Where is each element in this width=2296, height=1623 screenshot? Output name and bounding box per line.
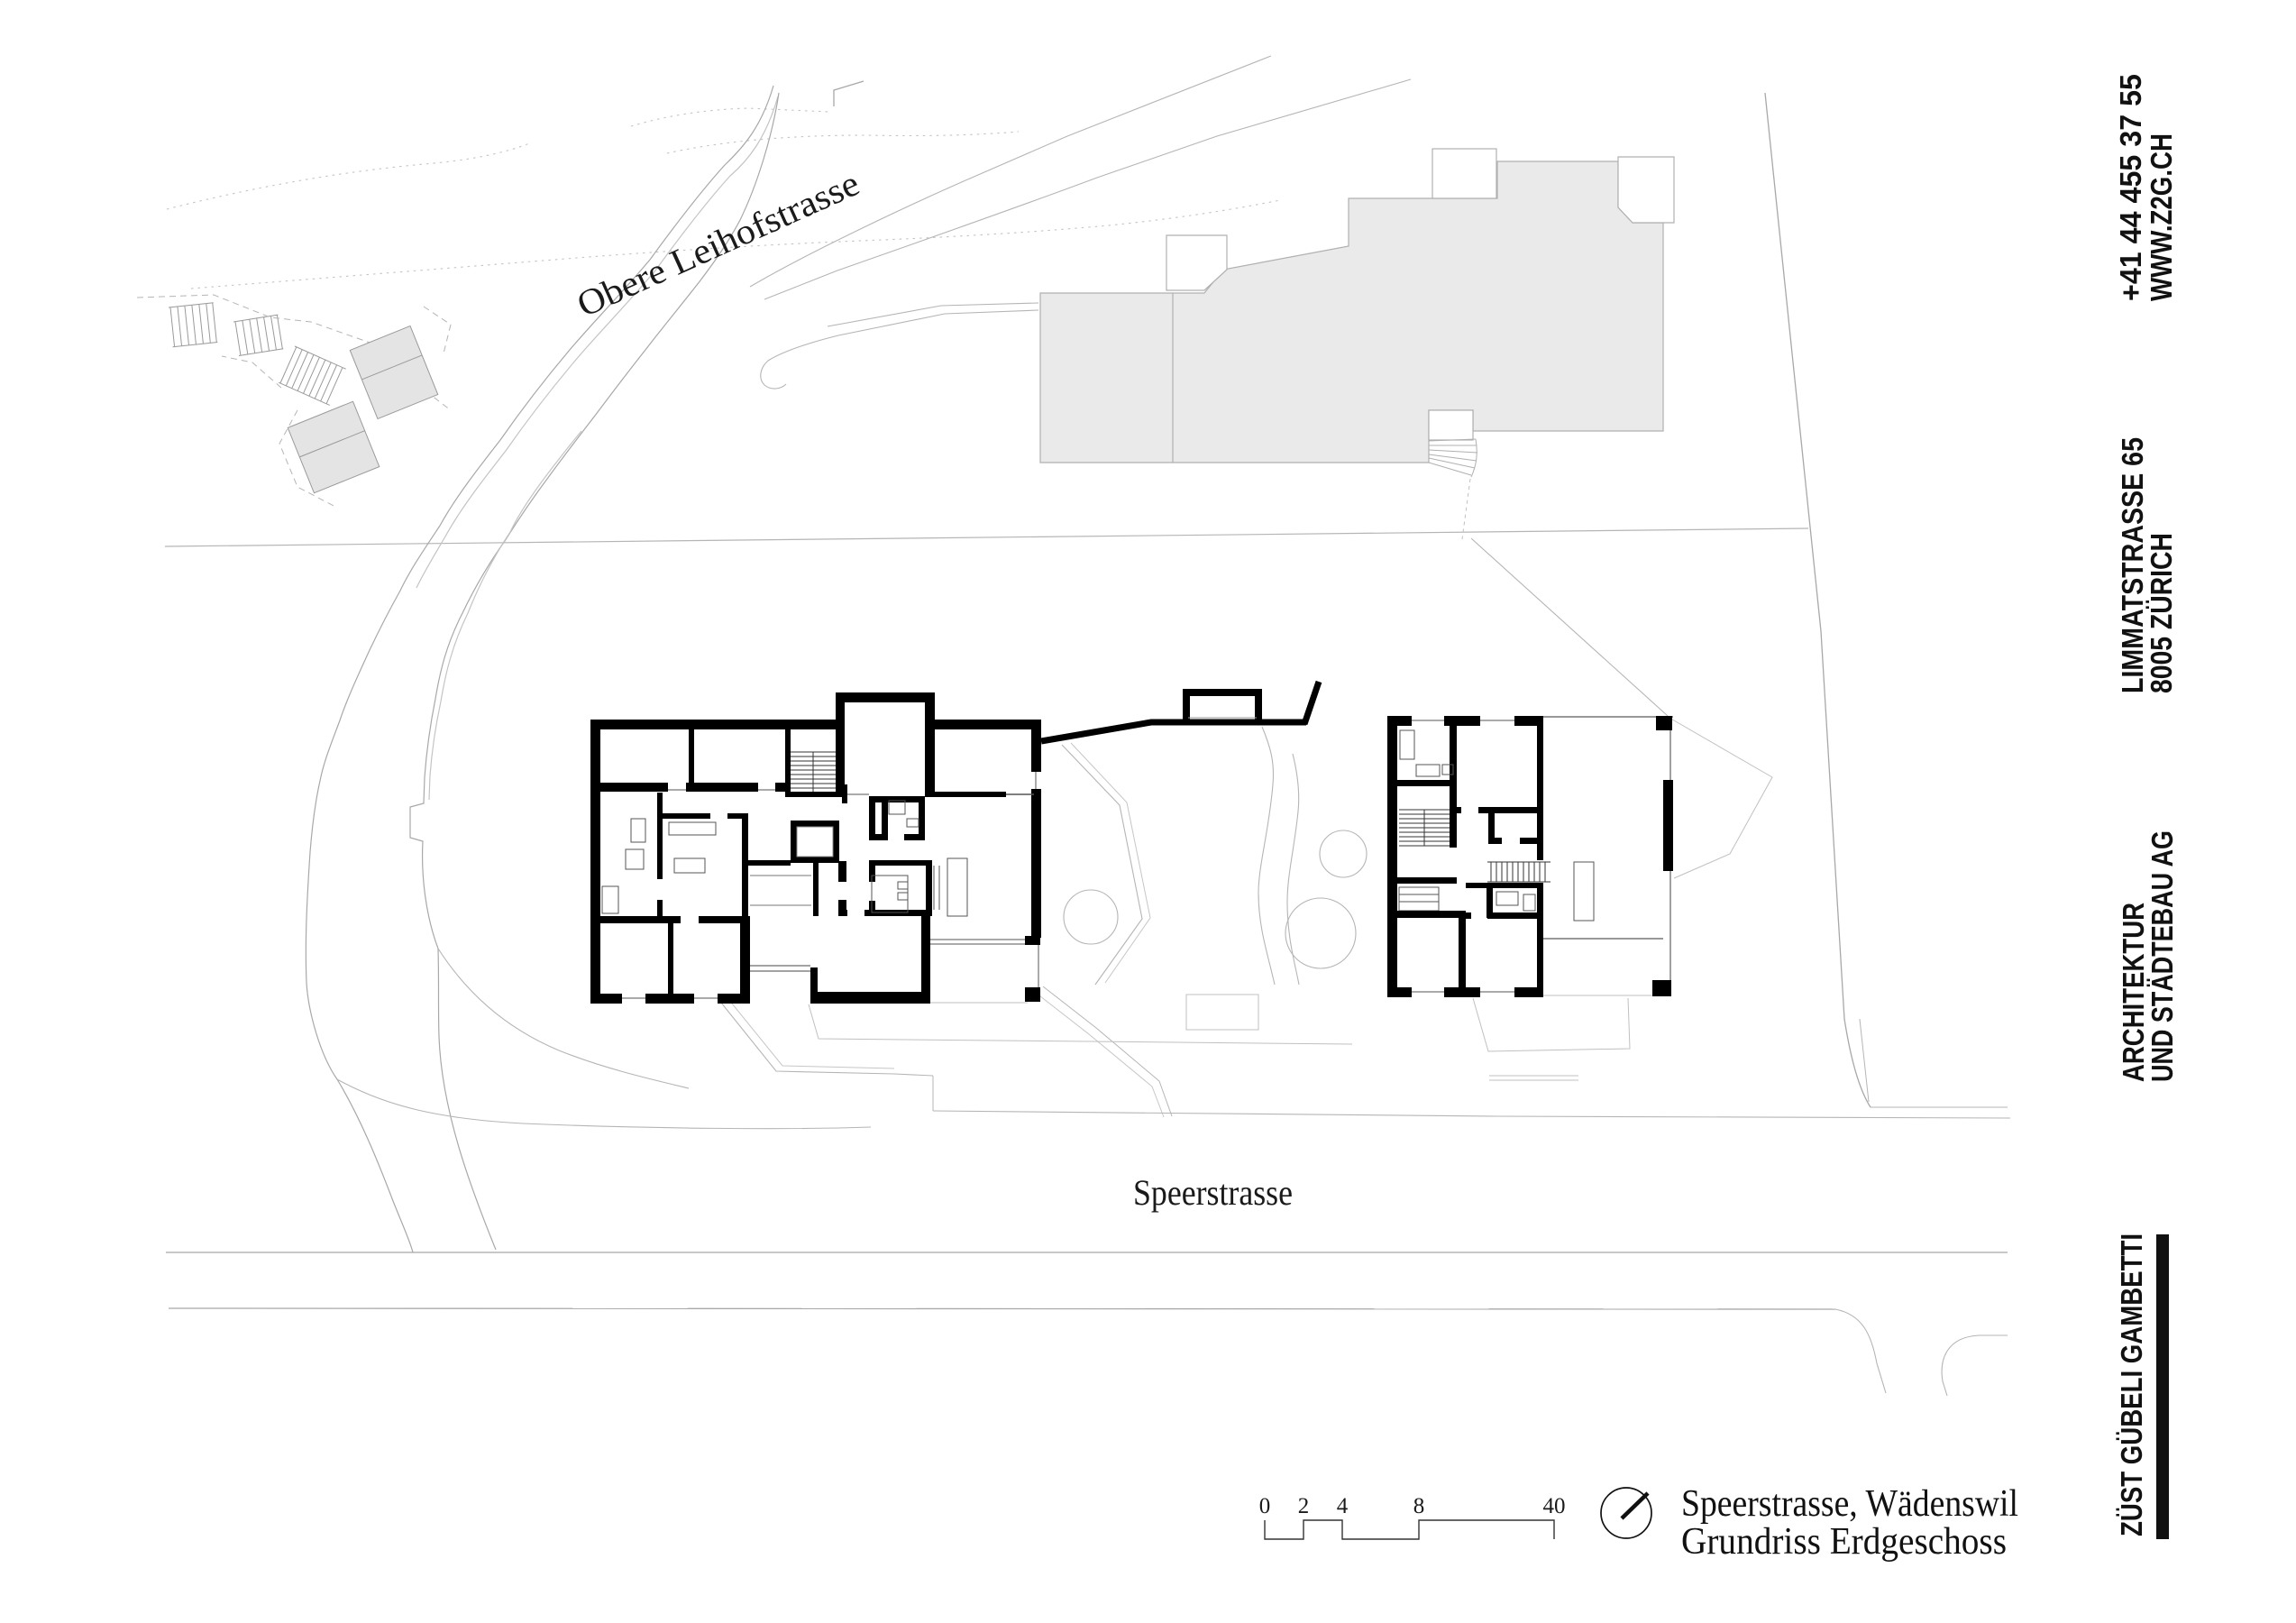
svg-text:Speerstrasse, Wädenswil: Speerstrasse, Wädenswil (1681, 1483, 2018, 1525)
svg-text:WWW.Z2G.CH: WWW.Z2G.CH (2145, 133, 2178, 301)
svg-text:+41 44 455 37 55: +41 44 455 37 55 (2114, 74, 2147, 301)
svg-text:8005 ZÜRICH: 8005 ZÜRICH (2145, 533, 2178, 693)
svg-text:Speerstrasse: Speerstrasse (1133, 1172, 1293, 1213)
svg-text:8: 8 (1413, 1494, 1425, 1518)
svg-text:40: 40 (1543, 1494, 1566, 1518)
svg-text:0: 0 (1259, 1494, 1271, 1518)
svg-text:UND STÄDTEBAU AG: UND STÄDTEBAU AG (2145, 830, 2179, 1082)
svg-text:ZÜST GÜBELI GAMBETTI: ZÜST GÜBELI GAMBETTI (2115, 1233, 2148, 1536)
svg-text:2: 2 (1298, 1494, 1310, 1518)
svg-text:4: 4 (1337, 1494, 1349, 1518)
svg-text:Grundriss Erdgeschoss: Grundriss Erdgeschoss (1681, 1521, 2007, 1563)
